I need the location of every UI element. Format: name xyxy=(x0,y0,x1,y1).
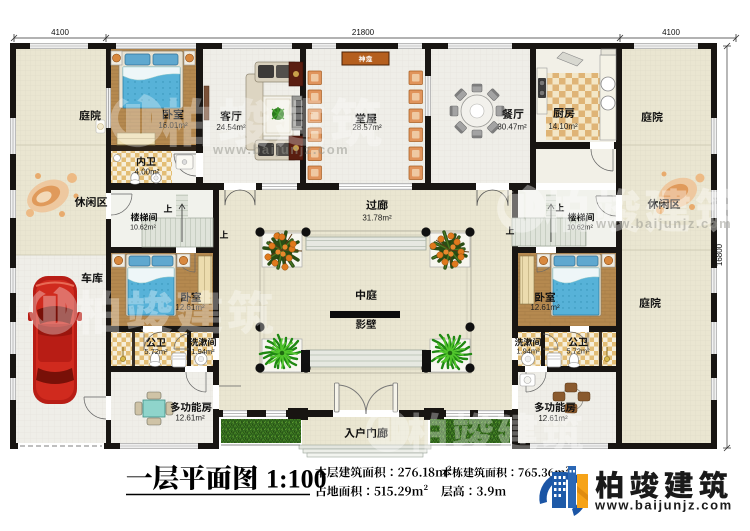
svg-text:10.62m²: 10.62m² xyxy=(130,225,156,232)
svg-text:www.baijunjz.com: www.baijunjz.com xyxy=(595,216,732,231)
svg-text:www.baijunjz.com: www.baijunjz.com xyxy=(594,498,733,513)
svg-text:16800: 16800 xyxy=(715,243,724,266)
svg-text:5.72m²: 5.72m² xyxy=(144,347,168,356)
svg-text:12.61m²: 12.61m² xyxy=(530,303,560,312)
svg-text:1.94m²: 1.94m² xyxy=(516,347,540,356)
svg-text:5.72m²: 5.72m² xyxy=(566,347,590,356)
svg-text:4100: 4100 xyxy=(662,28,680,37)
svg-text:1.94m²: 1.94m² xyxy=(191,347,215,356)
svg-text:14.10m²: 14.10m² xyxy=(548,122,578,131)
svg-text:21800: 21800 xyxy=(352,28,375,37)
svg-text:www.baijunjz.com: www.baijunjz.com xyxy=(212,142,349,157)
svg-text:4100: 4100 xyxy=(51,28,69,37)
svg-text:12.61m²: 12.61m² xyxy=(175,414,205,423)
svg-text:1:100: 1:100 xyxy=(266,465,327,494)
svg-text:30.47m²: 30.47m² xyxy=(497,123,527,132)
svg-text:31.78m²: 31.78m² xyxy=(362,214,392,223)
svg-text:4.00m²: 4.00m² xyxy=(135,168,160,177)
